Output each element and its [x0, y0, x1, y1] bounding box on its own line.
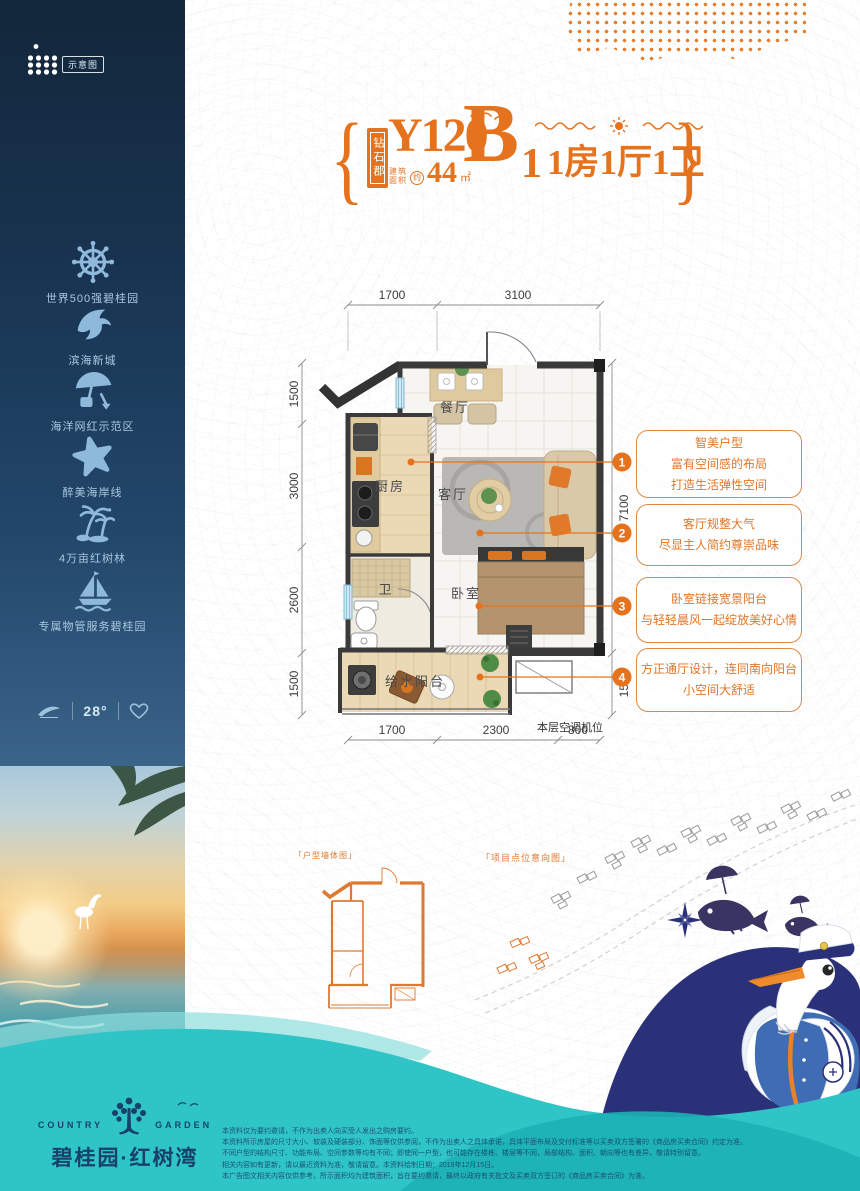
dim-left-1: 1500: [287, 380, 301, 407]
poster-page: 示意图 世界500强碧桂园: [0, 0, 860, 1191]
tree-icon: [109, 1094, 149, 1140]
room-label-bathroom: 卫: [378, 582, 393, 597]
dim-left-2: 3000: [287, 472, 301, 499]
disclaimer: 本资料仅为要约邀请，不作为出卖人向买受人发出之购房要约。 本资料所示房屋的尺寸大…: [222, 1126, 814, 1182]
callout-line: 尽显主人简约尊崇品味: [659, 535, 779, 556]
dim-top-2: 3100: [505, 288, 532, 302]
dolphin-icon: [71, 302, 115, 346]
palm-trees-icon: [71, 500, 115, 544]
callout-box-1: 智美户型 富有空间感的布局 打造生活弹性空间: [636, 430, 802, 498]
callout-line: 富有空间感的布局: [671, 454, 767, 475]
callout-line: 小空间大舒适: [683, 680, 755, 701]
block-number: 1: [521, 140, 542, 188]
callout-box-3: 卧室链接宽景阳台 与轻轻晨风一起绽放美好心情: [636, 577, 802, 643]
brand-en-right: GARDEN: [155, 1120, 212, 1140]
sidebar-feature-label: 专属物管服务碧桂园: [39, 618, 147, 634]
sidebar-feature-seaside: 滨海新城: [0, 302, 185, 368]
callout-box-2: 客厅规整大气 尽显主人简约尊崇品味: [636, 504, 802, 566]
sidebar-feature-label: 滨海新城: [69, 352, 117, 368]
disclaimer-line: 本广告图文相关内容仅供参考，所示面积均为建筑面积，旨在要约邀请，最终以政府有关批…: [222, 1171, 814, 1182]
brand-logo: COUNTRY GARDEN 碧桂园·红树湾: [30, 1094, 220, 1172]
halftone-dots-decoration: [566, 0, 806, 72]
callout-number: 3: [619, 600, 626, 614]
starfish-icon: [71, 434, 115, 478]
callout-line: 与轻轻晨风一起绽放美好心情: [641, 610, 797, 631]
estate-tag-text: 钻石郡: [370, 132, 385, 184]
heart-icon: [129, 703, 149, 720]
callout-number: 1: [619, 456, 626, 470]
callout-line: 客厅规整大气: [683, 514, 755, 535]
sidebar-feature-mangrove: 4万亩红树林: [0, 500, 185, 566]
room-label-bedroom: 卧室: [451, 586, 481, 601]
sidebar-badges: 28°: [0, 702, 185, 720]
room-label-balcony: 给水阳台: [385, 674, 445, 689]
approx-circle: 约: [410, 171, 424, 185]
callout-number: 4: [619, 671, 626, 685]
sidebar-feature-service: 专属物管服务碧桂园: [0, 568, 185, 634]
sidebar-feature-label: 海洋网红示范区: [51, 418, 135, 434]
callout-number: 2: [619, 527, 626, 541]
disclaimer-line: 不同户型的结构尺寸、功能布局、空间参数等均有不同；即使同一户型，也可能存在楼栋、…: [222, 1148, 814, 1159]
area-label: 建筑面积: [389, 167, 407, 185]
schematic-badge: 示意图: [62, 56, 104, 73]
birds-small-icon: [176, 1100, 206, 1108]
brace-left: {: [331, 108, 364, 207]
dim-bottom-1: 1700: [379, 723, 406, 737]
callout-line: 智美户型: [695, 433, 743, 454]
room-label-kitchen: 厨房: [375, 479, 405, 494]
sidebar-feature-brand500: 世界500强碧桂园: [0, 240, 185, 306]
sidebar-feature-coastline: 醉美海岸线: [0, 434, 185, 500]
dim-left-4: 1500: [287, 670, 301, 697]
beach-umbrella-icon: [71, 368, 115, 412]
disclaimer-line: 本资料所示房屋的尺寸大小、软装及硬装部分、饰面等仅供参阅，不作为出卖人之具体承诺…: [222, 1137, 814, 1148]
dim-left-3: 2600: [287, 586, 301, 613]
badge-divider: [118, 702, 119, 720]
floor-plan: 餐厅 厨房 客厅 卫 卧室 给水阳台 本层空调机位 1700 3100 1700…: [250, 285, 650, 765]
area-row: 建筑面积 约 44 ㎡: [389, 160, 471, 186]
left-sidebar: 示意图 世界500强碧桂园: [0, 0, 185, 766]
sidebar-feature-label: 醉美海岸线: [63, 484, 123, 500]
disclaimer-line: 本资料仅为要约邀请，不作为出卖人向买受人发出之购房要约。: [222, 1126, 814, 1137]
feather-swoosh-icon: [36, 703, 62, 719]
dim-right-1: 7100: [617, 494, 631, 521]
layout-text: 1房1厅1卫: [547, 134, 705, 185]
area-value: 44: [427, 160, 457, 186]
ship-wheel-icon: [71, 240, 115, 284]
dim-bottom-3: 800: [568, 723, 588, 737]
room-label-dining: 餐厅: [440, 400, 470, 415]
callout-line: 方正通厅设计，连同南向阳台: [641, 659, 797, 680]
sailboat-icon: [71, 568, 115, 612]
brand-en-left: COUNTRY: [38, 1120, 103, 1140]
disclaimer-line: 相关内容如有更新，请以最近资料为准，敬请留意。本资料绘制日期：2019年12月1…: [222, 1160, 814, 1171]
sidebar-feature-ocean-demo: 海洋网红示范区: [0, 368, 185, 434]
dim-bottom-2: 2300: [483, 723, 510, 737]
wave-and-sun-motif: [535, 116, 703, 136]
sidebar-feature-label: 4万亩红树林: [59, 550, 126, 566]
estate-tag: 钻石郡: [367, 128, 388, 188]
badge-divider: [72, 702, 73, 720]
room-label-living: 客厅: [438, 487, 468, 502]
callout-box-4: 方正通厅设计，连同南向阳台 小空间大舒适: [636, 648, 802, 712]
headline: { } 钻石郡 Y120 建筑面积 约 44 ㎡: [325, 106, 715, 206]
temperature-badge: 28°: [83, 703, 107, 719]
dim-top-1: 1700: [379, 288, 406, 302]
block-letter: B: [463, 92, 519, 176]
callout-line: 打造生活弹性空间: [671, 475, 767, 496]
callout-line: 卧室链接宽景阳台: [671, 589, 767, 610]
brand-cn: 碧桂园·红树湾: [30, 1142, 220, 1172]
